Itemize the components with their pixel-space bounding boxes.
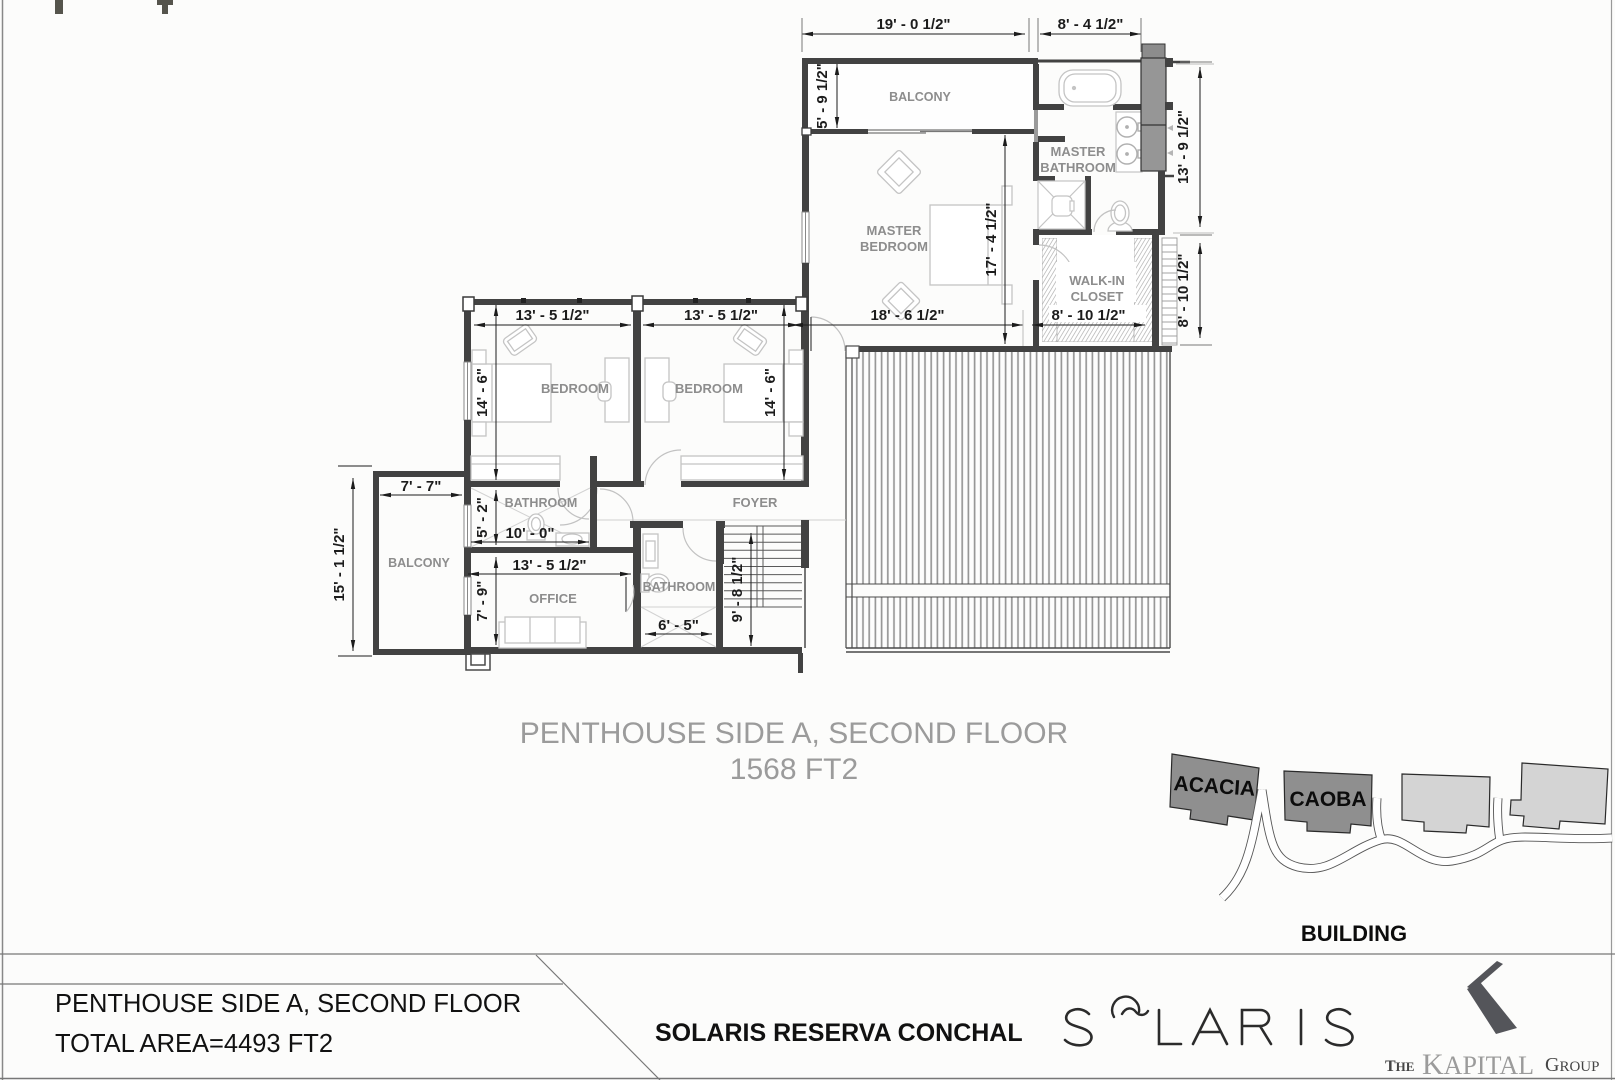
svg-text:8' - 10 1/2": 8' - 10 1/2" (1175, 253, 1192, 327)
svg-text:17' - 4 1/2": 17' - 4 1/2" (983, 202, 1000, 276)
svg-text:5' - 2": 5' - 2" (474, 497, 491, 538)
svg-text:9' - 8 1/2": 9' - 8 1/2" (729, 557, 746, 623)
svg-text:PENTHOUSE SIDE A, SECOND FLOOR: PENTHOUSE SIDE A, SECOND FLOOR (520, 717, 1068, 750)
svg-text:BATHROOM: BATHROOM (505, 496, 578, 510)
svg-text:THE: THE (1385, 1058, 1414, 1075)
svg-text:TOTAL AREA=4493 FT2: TOTAL AREA=4493 FT2 (55, 1030, 333, 1058)
svg-text:BEDROOM: BEDROOM (675, 381, 743, 396)
svg-text:1568 FT2: 1568 FT2 (730, 753, 858, 786)
svg-text:BATHROOM: BATHROOM (1040, 160, 1116, 175)
svg-text:7' - 9": 7' - 9" (474, 581, 491, 622)
svg-text:13' - 5 1/2": 13' - 5 1/2" (684, 307, 758, 324)
svg-text:BATHROOM: BATHROOM (643, 580, 716, 594)
svg-text:PENTHOUSE SIDE A, SECOND FLOOR: PENTHOUSE SIDE A, SECOND FLOOR (55, 990, 521, 1018)
svg-text:MASTER: MASTER (1051, 144, 1107, 159)
svg-text:10' - 0": 10' - 0" (505, 525, 554, 542)
svg-text:13' - 5 1/2": 13' - 5 1/2" (515, 307, 589, 324)
svg-text:BALCONY: BALCONY (889, 90, 951, 104)
svg-text:5' - 9 1/2": 5' - 9 1/2" (814, 63, 831, 129)
svg-text:8' - 10 1/2": 8' - 10 1/2" (1051, 307, 1125, 324)
svg-text:15' - 1 1/2": 15' - 1 1/2" (331, 527, 348, 601)
svg-text:WALK-IN: WALK-IN (1069, 273, 1125, 288)
svg-text:6' - 5": 6' - 5" (658, 617, 699, 634)
svg-text:14' - 6": 14' - 6" (762, 368, 779, 417)
svg-text:BEDROOM: BEDROOM (541, 381, 609, 396)
svg-text:13' - 9 1/2": 13' - 9 1/2" (1175, 110, 1192, 184)
svg-text:BEDROOM: BEDROOM (860, 239, 928, 254)
svg-text:BUILDING: BUILDING (1301, 921, 1407, 946)
svg-text:14' - 6": 14' - 6" (474, 368, 491, 417)
svg-text:18' - 6 1/2": 18' - 6 1/2" (870, 307, 944, 324)
svg-text:SOLARIS RESERVA CONCHAL: SOLARIS RESERVA CONCHAL (655, 1019, 1023, 1047)
svg-text:FOYER: FOYER (733, 495, 778, 510)
svg-text:KAPITAL: KAPITAL (1422, 1048, 1534, 1080)
svg-text:MASTER: MASTER (867, 223, 923, 238)
svg-text:CLOSET: CLOSET (1071, 289, 1124, 304)
svg-text:13' - 5 1/2": 13' - 5 1/2" (512, 557, 586, 574)
svg-text:7' - 7": 7' - 7" (401, 478, 442, 495)
svg-text:8' - 4 1/2": 8' - 4 1/2" (1058, 16, 1124, 33)
svg-text:CAOBA: CAOBA (1290, 788, 1367, 811)
svg-text:OFFICE: OFFICE (529, 591, 577, 606)
svg-text:19' - 0 1/2": 19' - 0 1/2" (876, 16, 950, 33)
svg-text:BALCONY: BALCONY (388, 556, 450, 570)
